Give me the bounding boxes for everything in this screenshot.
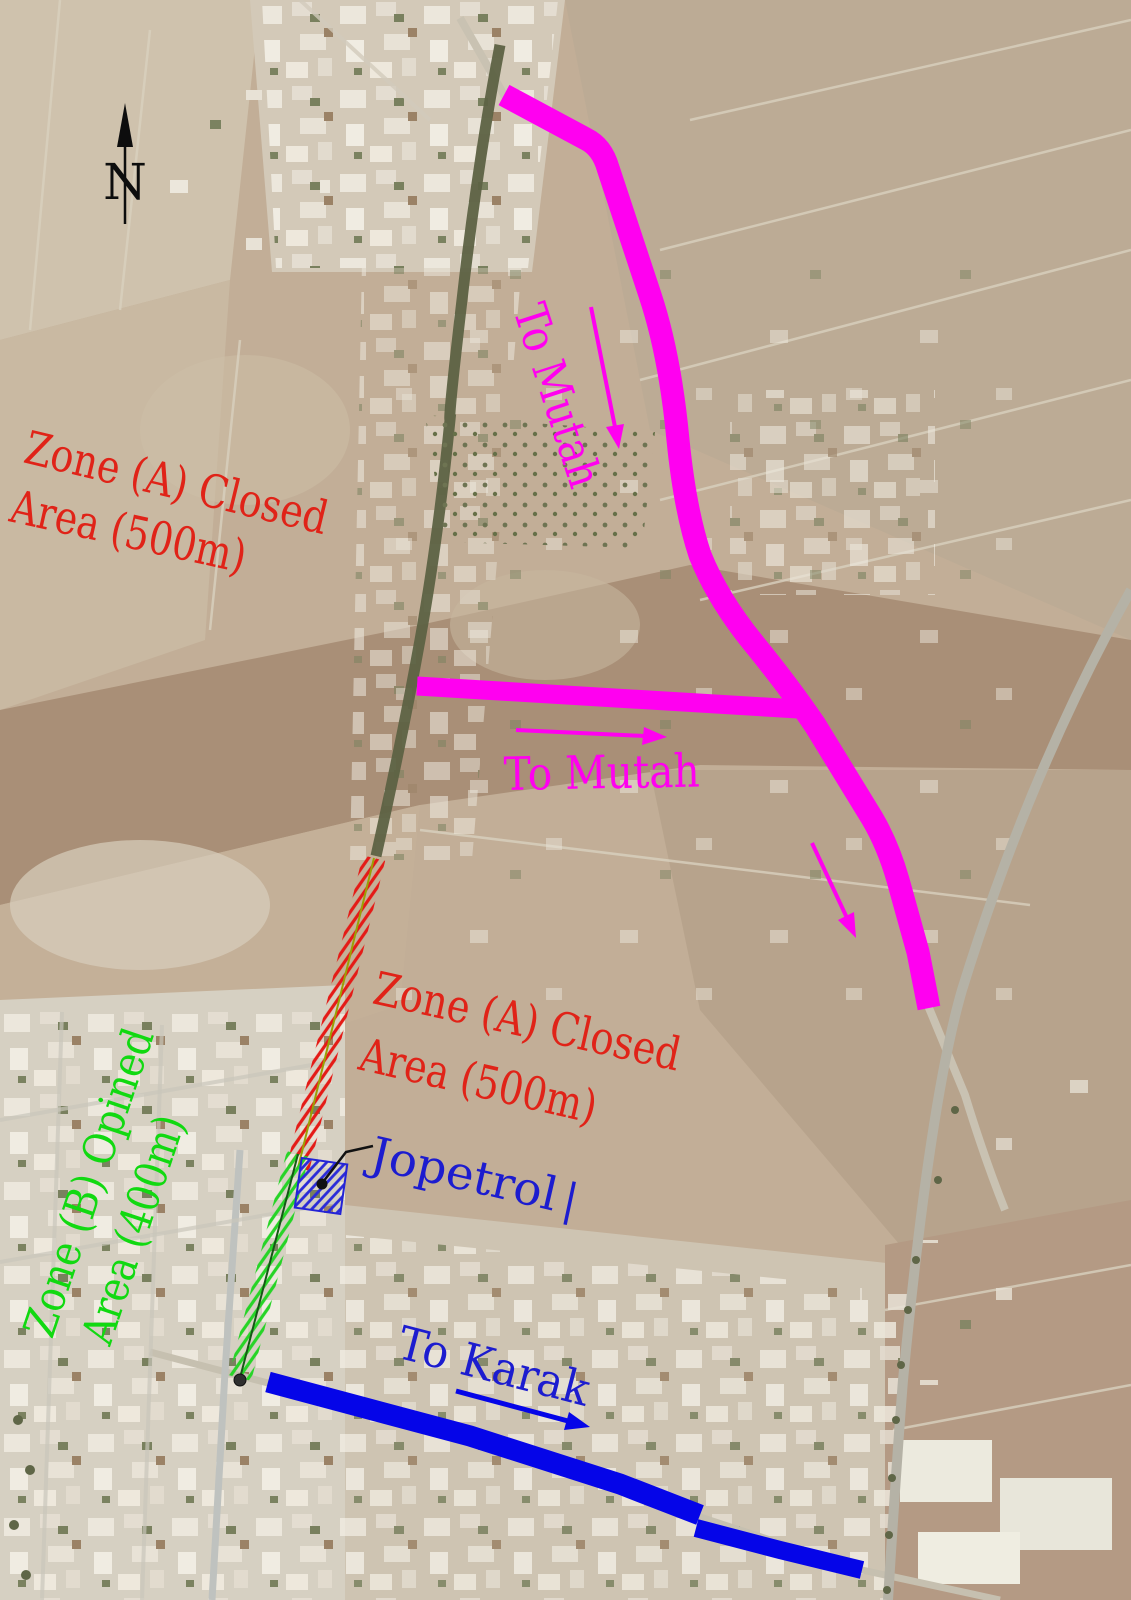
north-label: N (103, 153, 147, 211)
to-mutah-branch-label: To Mutah (503, 744, 700, 801)
cluster-right-low (860, 1240, 1045, 1385)
industrial-building-1 (900, 1440, 992, 1502)
houses-mid-left (120, 90, 330, 270)
industrial-building-3 (918, 1532, 1020, 1584)
map-svg: N Zone (A) Closed Area (500m) Zone (A) C… (0, 0, 1131, 1600)
scattered-center (380, 250, 1020, 1010)
strip-end-node (234, 1374, 246, 1386)
map-canvas: N Zone (A) Closed Area (500m) Zone (A) C… (0, 0, 1131, 1600)
cluster-right-mid (975, 1040, 1131, 1165)
terrain-bare-patch (10, 840, 270, 970)
jopetrol-dot (317, 1179, 328, 1190)
